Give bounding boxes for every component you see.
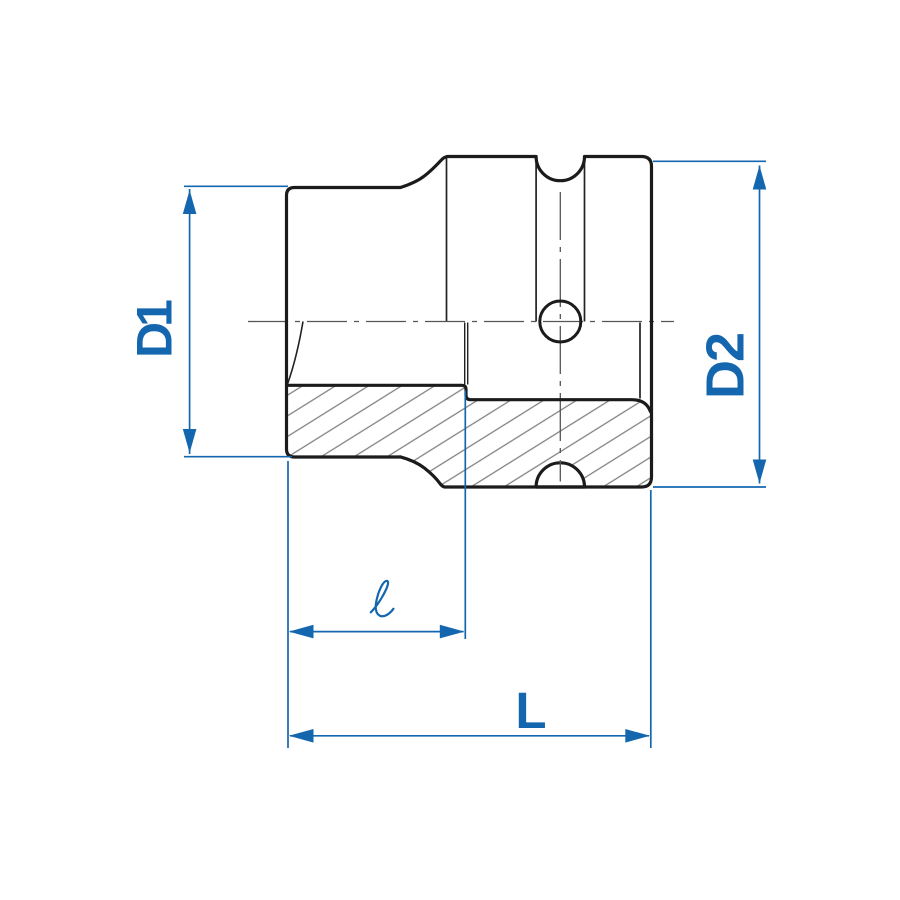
svg-text:D1: D1 (127, 300, 183, 358)
svg-text:L: L (515, 682, 546, 739)
svg-text:D2: D2 (695, 334, 755, 399)
